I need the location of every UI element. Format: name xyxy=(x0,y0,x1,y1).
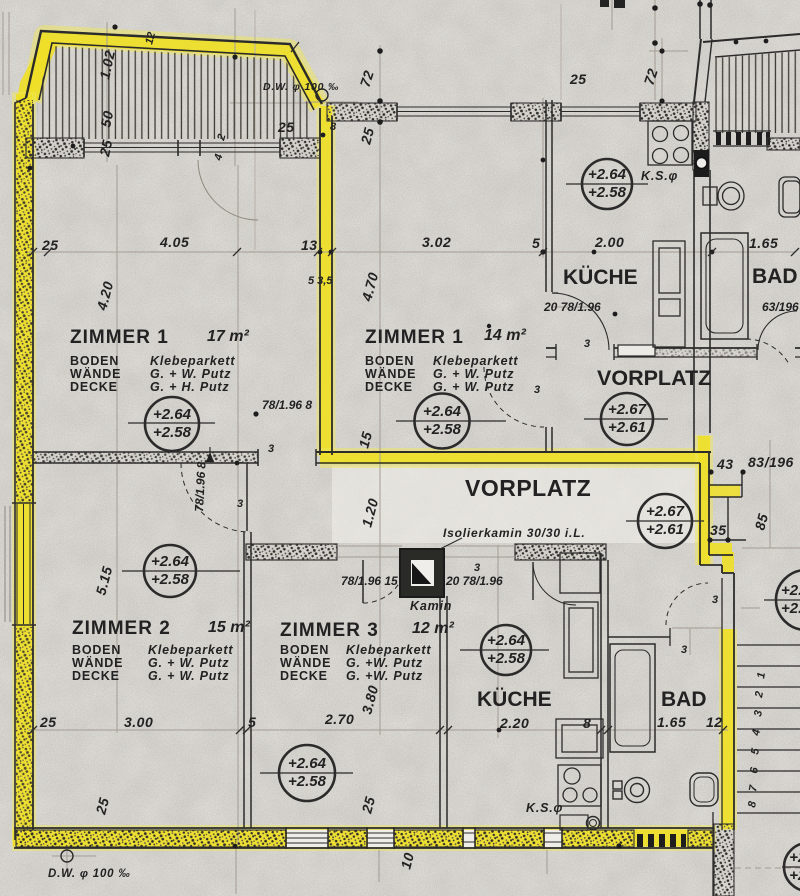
svg-text:25: 25 xyxy=(277,119,295,135)
svg-text:17 m²: 17 m² xyxy=(207,328,249,345)
svg-text:83/196: 83/196 xyxy=(748,454,794,470)
svg-text:Klebeparkett: Klebeparkett xyxy=(148,643,233,657)
svg-text:G. + W. Putz: G. + W. Putz xyxy=(148,669,229,683)
svg-text:25: 25 xyxy=(569,71,587,87)
svg-text:35: 35 xyxy=(710,522,727,538)
svg-text:Klebeparkett: Klebeparkett xyxy=(346,643,431,657)
svg-text:Kamin: Kamin xyxy=(410,599,452,613)
svg-text:BODEN: BODEN xyxy=(280,643,329,657)
svg-text:D.W. φ 100 ‰: D.W. φ 100 ‰ xyxy=(263,81,339,93)
svg-text:G. +W. Putz: G. +W. Putz xyxy=(346,656,423,670)
svg-text:BAD: BAD xyxy=(752,265,798,288)
svg-text:WÄNDE: WÄNDE xyxy=(280,655,331,670)
svg-text:DECKE: DECKE xyxy=(280,669,328,683)
svg-text:ZIMMER 2: ZIMMER 2 xyxy=(72,618,171,639)
svg-text:12 m²: 12 m² xyxy=(412,620,454,637)
svg-text:+2.58: +2.58 xyxy=(153,424,192,441)
svg-text:20 78/1.96: 20 78/1.96 xyxy=(445,574,503,588)
svg-text:+2.6: +2.6 xyxy=(789,867,800,884)
svg-text:+2.64: +2.64 xyxy=(153,406,192,423)
svg-text:+2.6: +2.6 xyxy=(789,849,800,866)
svg-text:BODEN: BODEN xyxy=(72,643,121,657)
svg-text:3.02: 3.02 xyxy=(422,234,451,250)
svg-text:KÜCHE: KÜCHE xyxy=(477,688,552,711)
svg-text:+2.58: +2.58 xyxy=(487,650,526,667)
svg-text:50: 50 xyxy=(97,109,116,129)
svg-text:14 m²: 14 m² xyxy=(484,327,526,344)
svg-text:+2.61: +2.61 xyxy=(781,600,800,617)
svg-text:+2.61: +2.61 xyxy=(646,521,684,538)
svg-text:1.65: 1.65 xyxy=(657,714,686,730)
svg-text:Klebeparkett: Klebeparkett xyxy=(150,354,235,368)
svg-text:5: 5 xyxy=(248,714,256,730)
svg-text:+2.64: +2.64 xyxy=(423,403,462,420)
svg-text:KÜCHE: KÜCHE xyxy=(563,266,638,289)
svg-text:DECKE: DECKE xyxy=(72,669,120,683)
svg-text:BAD: BAD xyxy=(661,688,707,711)
svg-text:4.05: 4.05 xyxy=(159,234,189,250)
svg-text:+2.61: +2.61 xyxy=(608,419,646,436)
svg-text:15 m²: 15 m² xyxy=(208,619,250,636)
svg-text:+2.64: +2.64 xyxy=(151,553,190,570)
svg-text:78/1.96 8: 78/1.96 8 xyxy=(262,398,312,412)
svg-text:+2.64: +2.64 xyxy=(487,632,526,649)
svg-text:63/196: 63/196 xyxy=(762,300,799,314)
svg-text:+2.64: +2.64 xyxy=(588,166,627,183)
svg-text:3: 3 xyxy=(534,384,540,396)
svg-text:20 78/1.96: 20 78/1.96 xyxy=(543,300,601,314)
svg-text:2.70: 2.70 xyxy=(324,711,354,727)
svg-text:5 3,5: 5 3,5 xyxy=(308,275,333,287)
svg-text:+2.58: +2.58 xyxy=(288,773,327,790)
svg-text:DECKE: DECKE xyxy=(365,380,413,394)
svg-text:8: 8 xyxy=(583,715,591,731)
svg-text:ZIMMER 1: ZIMMER 1 xyxy=(70,327,169,348)
svg-text:BODEN: BODEN xyxy=(70,354,119,368)
svg-text:25: 25 xyxy=(39,714,57,730)
svg-text:+2.58: +2.58 xyxy=(588,184,627,201)
svg-text:+2.58: +2.58 xyxy=(423,421,462,438)
svg-text:+2.64: +2.64 xyxy=(288,755,327,772)
svg-text:25: 25 xyxy=(41,237,59,253)
svg-text:G. + W. Putz: G. + W. Putz xyxy=(148,656,229,670)
svg-text:+2.67: +2.67 xyxy=(608,401,647,418)
svg-text:K.S.φ: K.S.φ xyxy=(641,169,678,183)
svg-text:1.65: 1.65 xyxy=(749,235,778,251)
svg-text:WÄNDE: WÄNDE xyxy=(365,366,416,381)
svg-text:D.W. φ 100 ‰: D.W. φ 100 ‰ xyxy=(48,868,131,880)
svg-text:78/1.96 8: 78/1.96 8 xyxy=(192,461,209,512)
svg-text:43: 43 xyxy=(716,456,734,472)
svg-text:5: 5 xyxy=(532,235,540,251)
svg-text:3: 3 xyxy=(584,338,590,350)
svg-text:3: 3 xyxy=(474,562,480,574)
svg-text:G. + W. Putz: G. + W. Putz xyxy=(433,367,514,381)
svg-text:VORPLATZ: VORPLATZ xyxy=(465,475,591,501)
svg-text:+2.67: +2.67 xyxy=(646,503,685,520)
svg-text:WÄNDE: WÄNDE xyxy=(70,366,121,381)
svg-text:3: 3 xyxy=(712,594,718,606)
svg-text:G. + W. Putz: G. + W. Putz xyxy=(150,367,231,381)
svg-text:3: 3 xyxy=(237,498,243,510)
svg-text:ZIMMER 3: ZIMMER 3 xyxy=(280,620,379,641)
svg-text:2.20: 2.20 xyxy=(499,715,529,731)
svg-text:13: 13 xyxy=(301,237,318,253)
svg-text:Isolierkamin 30/30 i.L.: Isolierkamin 30/30 i.L. xyxy=(443,526,585,540)
svg-text:DECKE: DECKE xyxy=(70,380,118,394)
svg-text:2.00: 2.00 xyxy=(594,234,624,250)
svg-text:Klebeparkett: Klebeparkett xyxy=(433,354,518,368)
svg-text:8: 8 xyxy=(330,121,337,133)
svg-text:VORPLATZ: VORPLATZ xyxy=(597,366,711,390)
svg-text:ZIMMER 1: ZIMMER 1 xyxy=(365,327,464,348)
svg-text:K.S.φ: K.S.φ xyxy=(526,801,563,815)
svg-text:3: 3 xyxy=(268,443,274,455)
svg-text:3.00: 3.00 xyxy=(124,714,153,730)
svg-text:G. + H. Putz: G. + H. Putz xyxy=(150,380,229,394)
svg-text:WÄNDE: WÄNDE xyxy=(72,655,123,670)
svg-text:BODEN: BODEN xyxy=(365,354,414,368)
svg-text:12: 12 xyxy=(706,714,723,730)
svg-text:+2.58: +2.58 xyxy=(151,571,190,588)
svg-text:3: 3 xyxy=(681,644,687,656)
svg-text:G. +W. Putz: G. +W. Putz xyxy=(346,669,423,683)
svg-text:G. + W. Putz: G. + W. Putz xyxy=(433,380,514,394)
svg-text:78/1.96 15: 78/1.96 15 xyxy=(341,574,398,588)
svg-text:+2.67: +2.67 xyxy=(781,582,800,599)
